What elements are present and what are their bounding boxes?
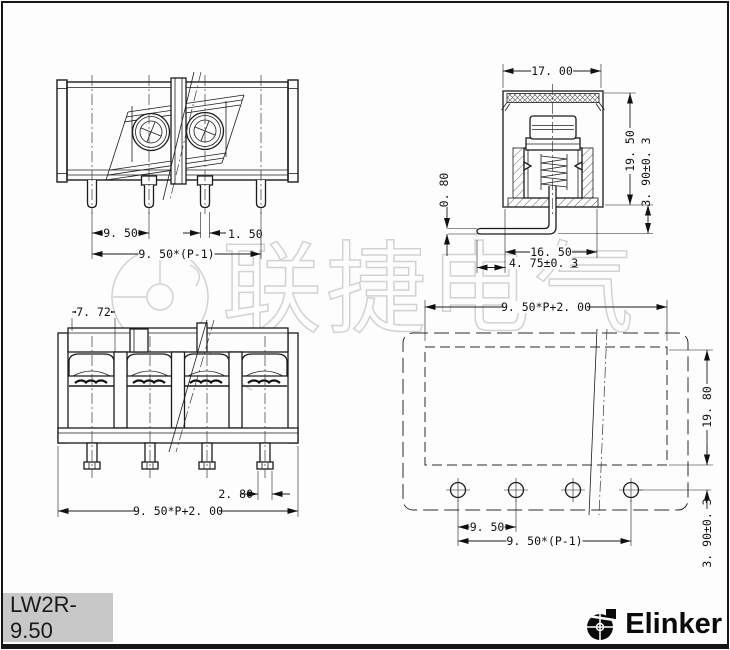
section-view: 17. 00 19. 50 3. 90±0. 3 0. 80 bbox=[437, 64, 653, 273]
component-outline bbox=[425, 347, 667, 465]
dim-unit-width: 7. 72 bbox=[76, 305, 111, 319]
brand-logo: Elinker bbox=[581, 606, 722, 642]
rear-view: 7. 72 2. 80 9. 50*P+2. 00 bbox=[58, 305, 298, 518]
technical-drawing: 9. 50 1. 50 9. 50*(P-1) bbox=[0, 0, 730, 650]
center-post bbox=[171, 78, 186, 184]
part-number-box: LW2R-9.50 bbox=[3, 593, 113, 642]
dim-outline-height: 19. 80 bbox=[700, 386, 714, 428]
dim-pitch-span: 9. 50*(P-1) bbox=[138, 247, 214, 261]
drawing-page: 联捷电气 bbox=[0, 0, 730, 650]
dim-hole-offset: 3. 90±0. 3 bbox=[700, 498, 714, 567]
elinker-logo-icon bbox=[581, 606, 623, 642]
dim-body-height: 19. 50 bbox=[623, 130, 637, 172]
dim-rear-overall-length: 9. 50*P+2. 00 bbox=[133, 504, 223, 518]
front-view: 9. 50 1. 50 9. 50*(P-1) bbox=[57, 72, 298, 261]
pcb-view: 9. 50*P+2. 00 19. 80 3. 90±0. 3 9. 50 9.… bbox=[403, 300, 714, 568]
dim-hole-pitch: 9. 50 bbox=[470, 520, 505, 534]
dim-top-width: 17. 00 bbox=[531, 64, 573, 78]
clamp-assembly bbox=[524, 116, 582, 198]
front-dimensions: 9. 50 1. 50 9. 50*(P-1) bbox=[92, 212, 263, 261]
dim-pin-foot-width: 2. 80 bbox=[218, 487, 253, 501]
rear-pins bbox=[84, 443, 273, 469]
dim-lead-below: 3. 90±0. 3 bbox=[639, 137, 653, 206]
dim-lead-thickness: 0. 80 bbox=[437, 173, 451, 208]
dim-pin-width: 1. 50 bbox=[228, 227, 263, 241]
pcb-dimensions: 9. 50*P+2. 00 19. 80 3. 90±0. 3 9. 50 9.… bbox=[425, 300, 714, 568]
rear-top-deck bbox=[68, 328, 288, 352]
dim-pin-pitch: 9. 50 bbox=[103, 226, 138, 240]
brand-name: Elinker bbox=[625, 608, 722, 641]
screw-left bbox=[133, 114, 170, 151]
part-number: LW2R-9.50 bbox=[10, 592, 113, 644]
board-outline bbox=[403, 333, 688, 510]
dim-lead-inset: 4. 75±0. 3 bbox=[509, 256, 578, 270]
dim-hole-span: 9. 50*(P-1) bbox=[506, 534, 582, 548]
crimp-strip bbox=[507, 94, 599, 103]
mounting-holes bbox=[446, 478, 643, 502]
dim-pcb-overall-length: 9. 50*P+2. 00 bbox=[501, 300, 591, 314]
